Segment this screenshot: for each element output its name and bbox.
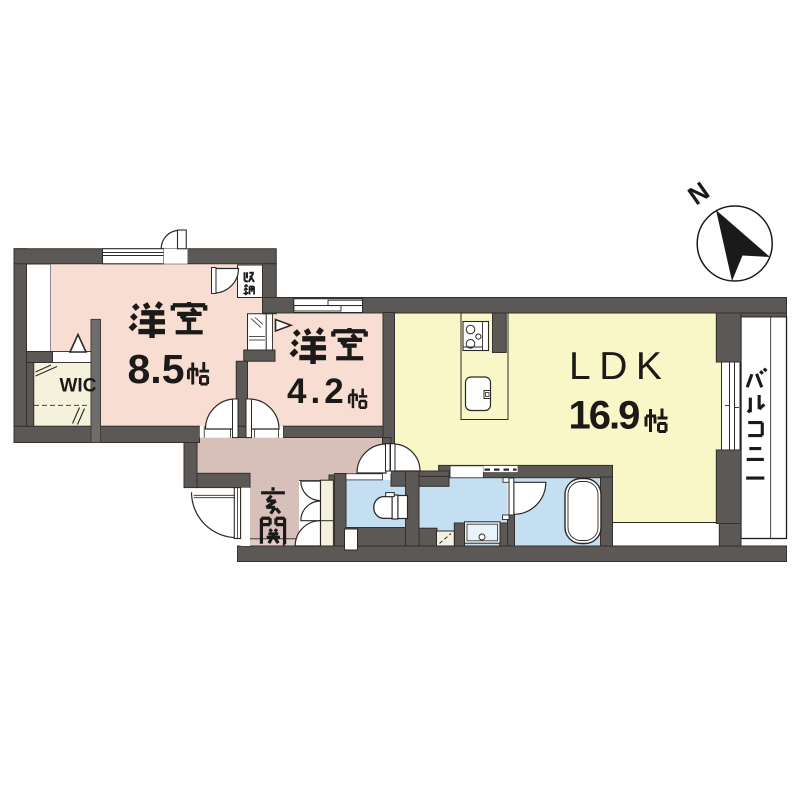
svg-text:WIC: WIC — [60, 376, 97, 397]
svg-text:16.9: 16.9 — [569, 394, 640, 438]
svg-text:LDK: LDK — [569, 345, 670, 388]
svg-text:4.2: 4.2 — [287, 372, 348, 411]
svg-text:8.5: 8.5 — [128, 346, 185, 392]
